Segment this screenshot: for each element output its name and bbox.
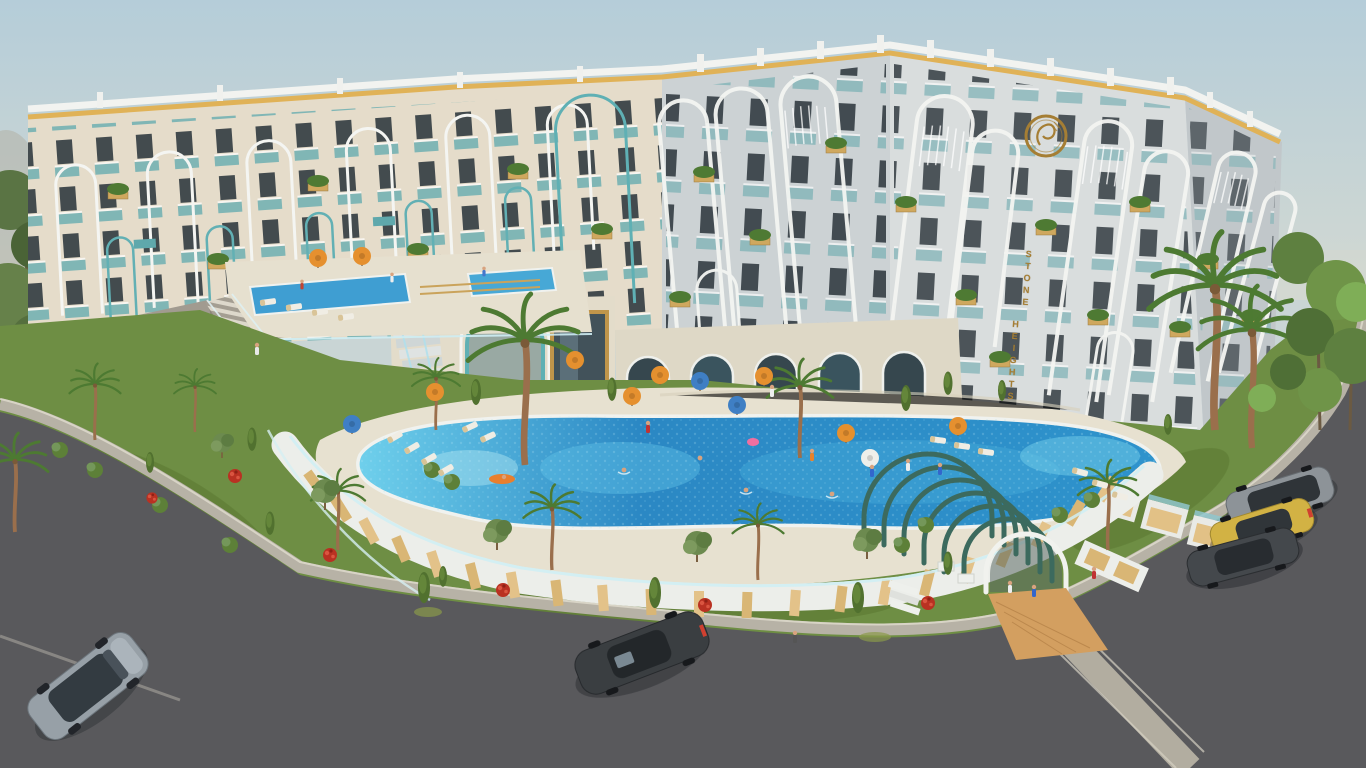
architectural-render: STONE HEIGHTS bbox=[0, 0, 1366, 768]
main-pool[interactable] bbox=[358, 416, 1160, 529]
pool-float-pink bbox=[747, 438, 759, 446]
pool-float-orange bbox=[489, 474, 515, 484]
white-planter bbox=[958, 574, 974, 583]
scene-canvas bbox=[0, 0, 1366, 768]
